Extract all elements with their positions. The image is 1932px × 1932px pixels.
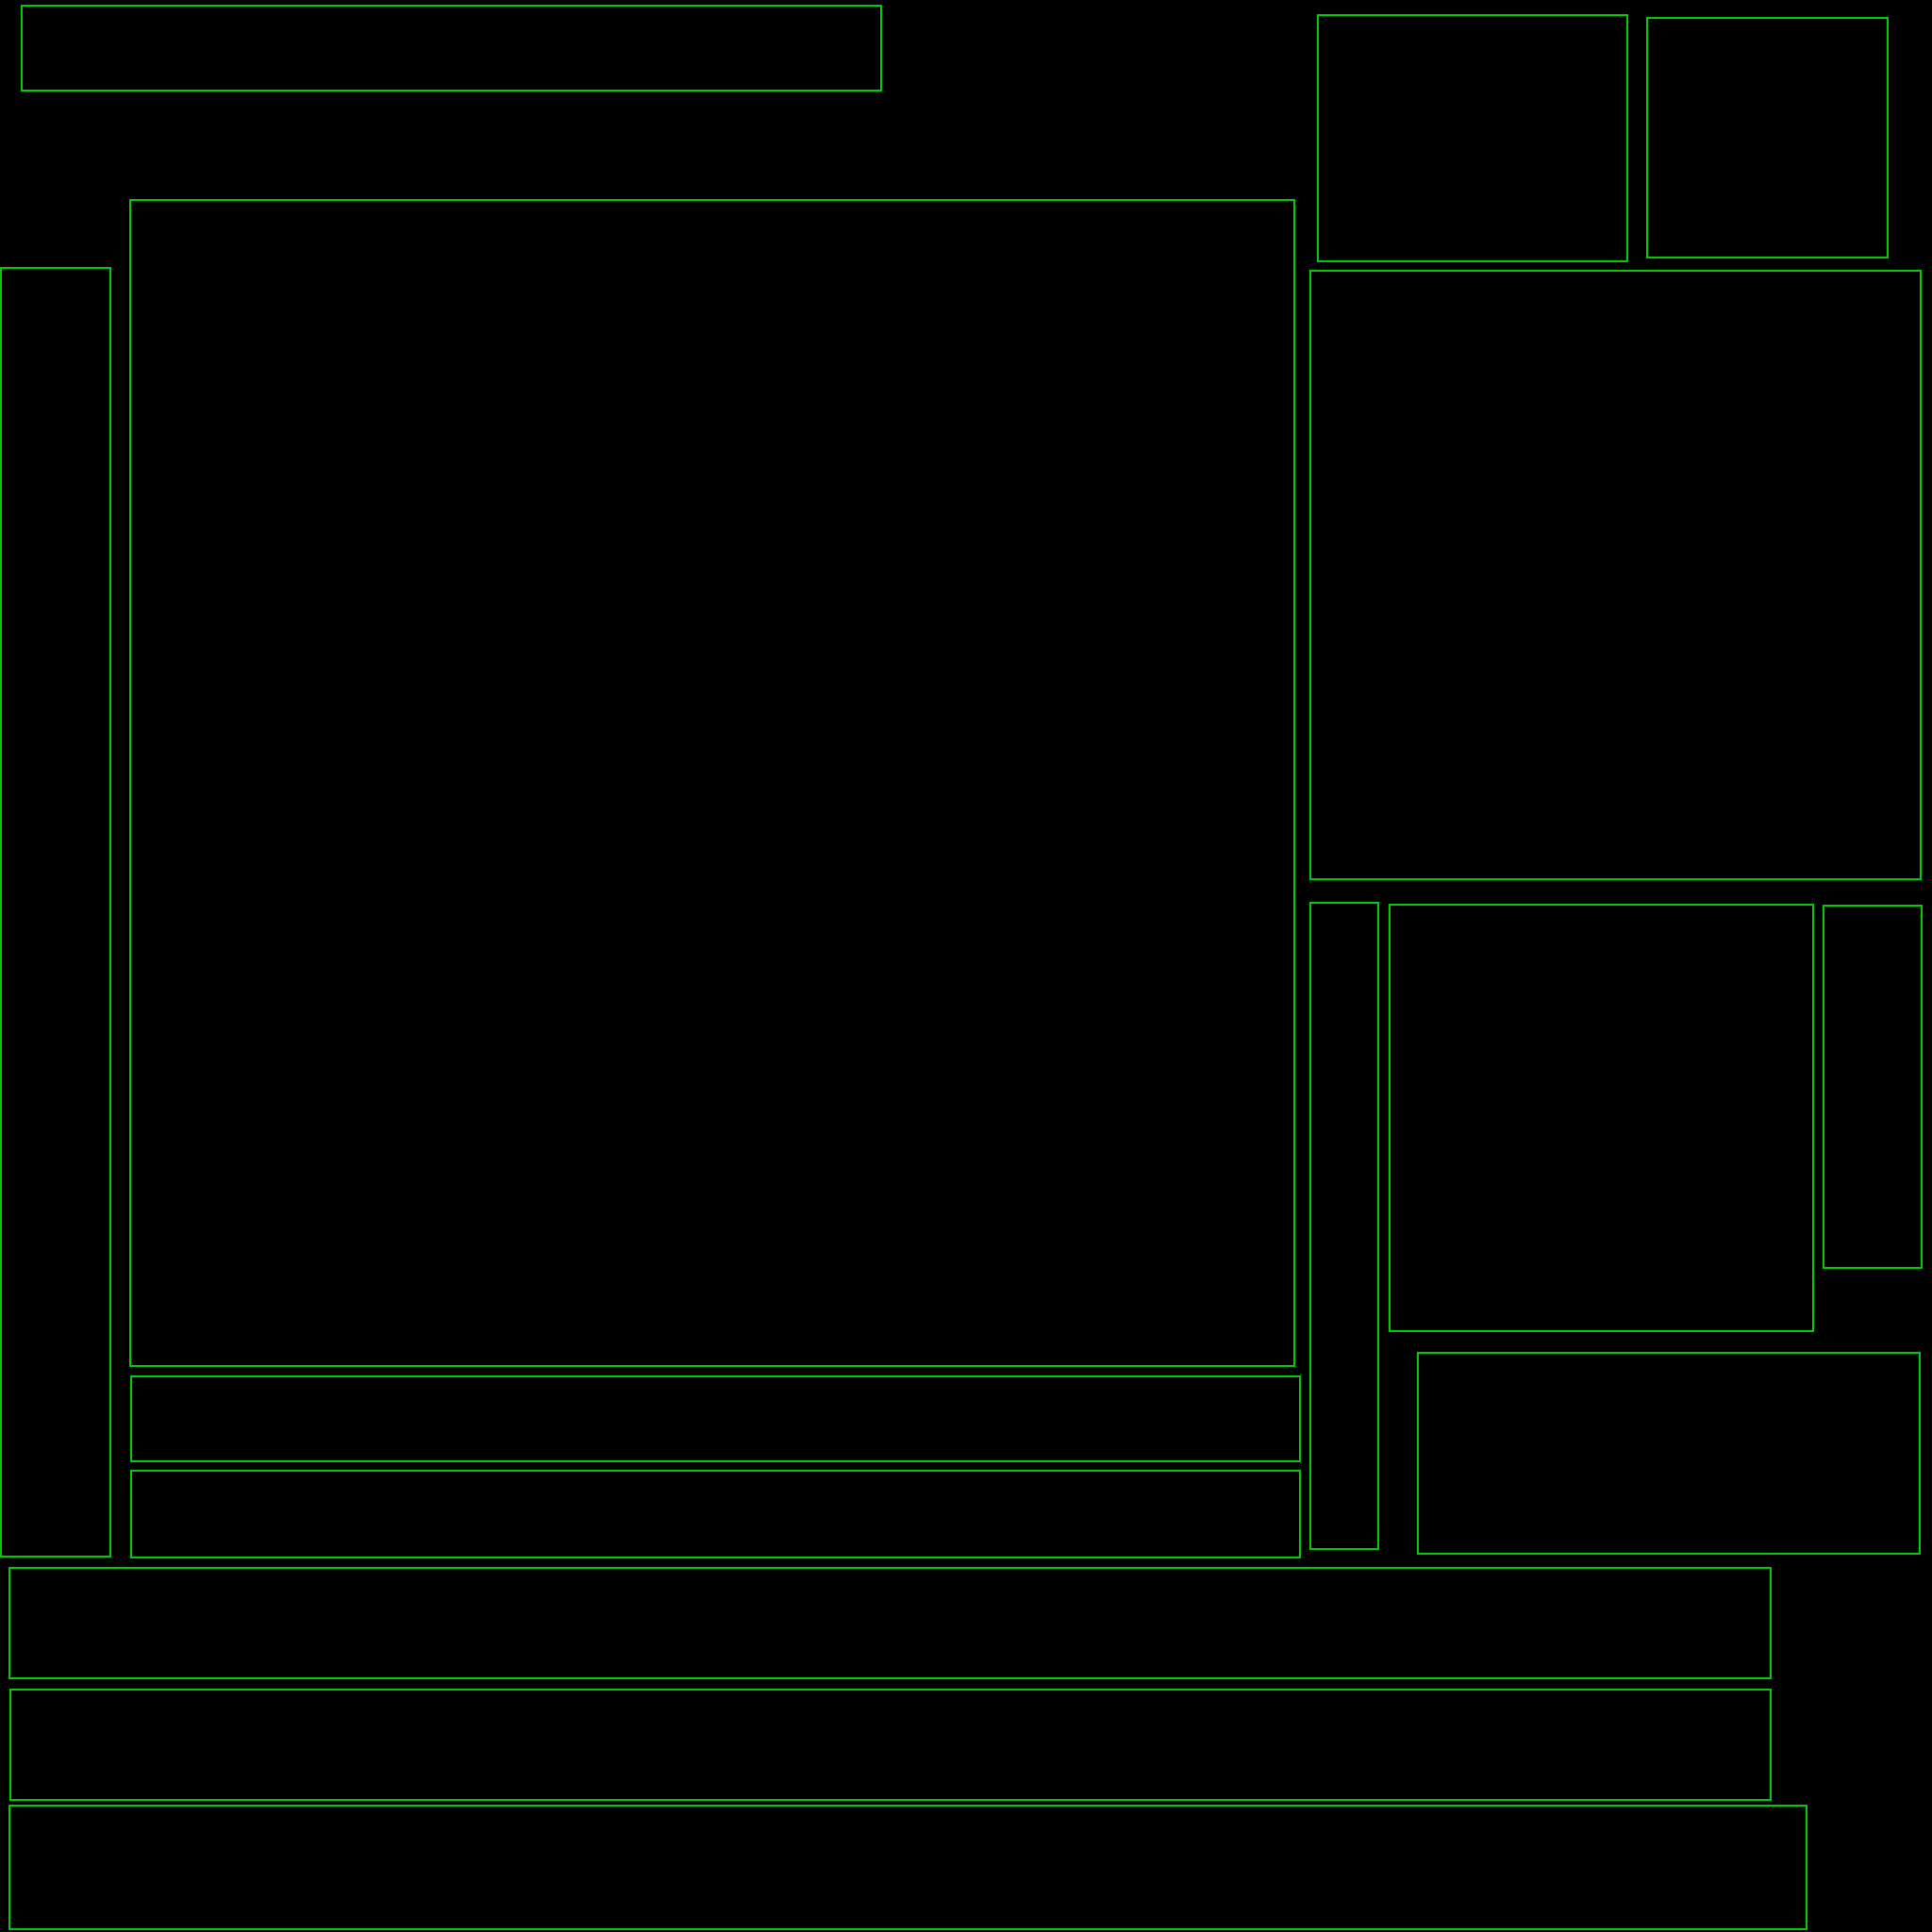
- bottom-bar-3-region: [8, 1805, 1807, 1930]
- screen-background: [0, 0, 1932, 1932]
- right-edge-strip-region: [1823, 905, 1923, 1269]
- right-panel-large-region: [1309, 270, 1922, 880]
- top-right-box-1-region: [1317, 14, 1628, 262]
- bottom-bar-1-region: [8, 1567, 1772, 1679]
- top-left-bar-region: [21, 5, 882, 92]
- bottom-bar-2-region: [9, 1689, 1772, 1801]
- main-lower-bar-1-region: [130, 1375, 1301, 1462]
- top-right-box-2-region: [1646, 17, 1889, 258]
- right-middle-panel-region: [1389, 904, 1814, 1332]
- right-lower-panel-region: [1417, 1352, 1921, 1555]
- left-sidebar-region: [0, 267, 111, 1557]
- main-canvas-region: [129, 199, 1295, 1367]
- main-lower-bar-2-region: [130, 1470, 1301, 1558]
- right-thin-strip-region: [1309, 902, 1379, 1550]
